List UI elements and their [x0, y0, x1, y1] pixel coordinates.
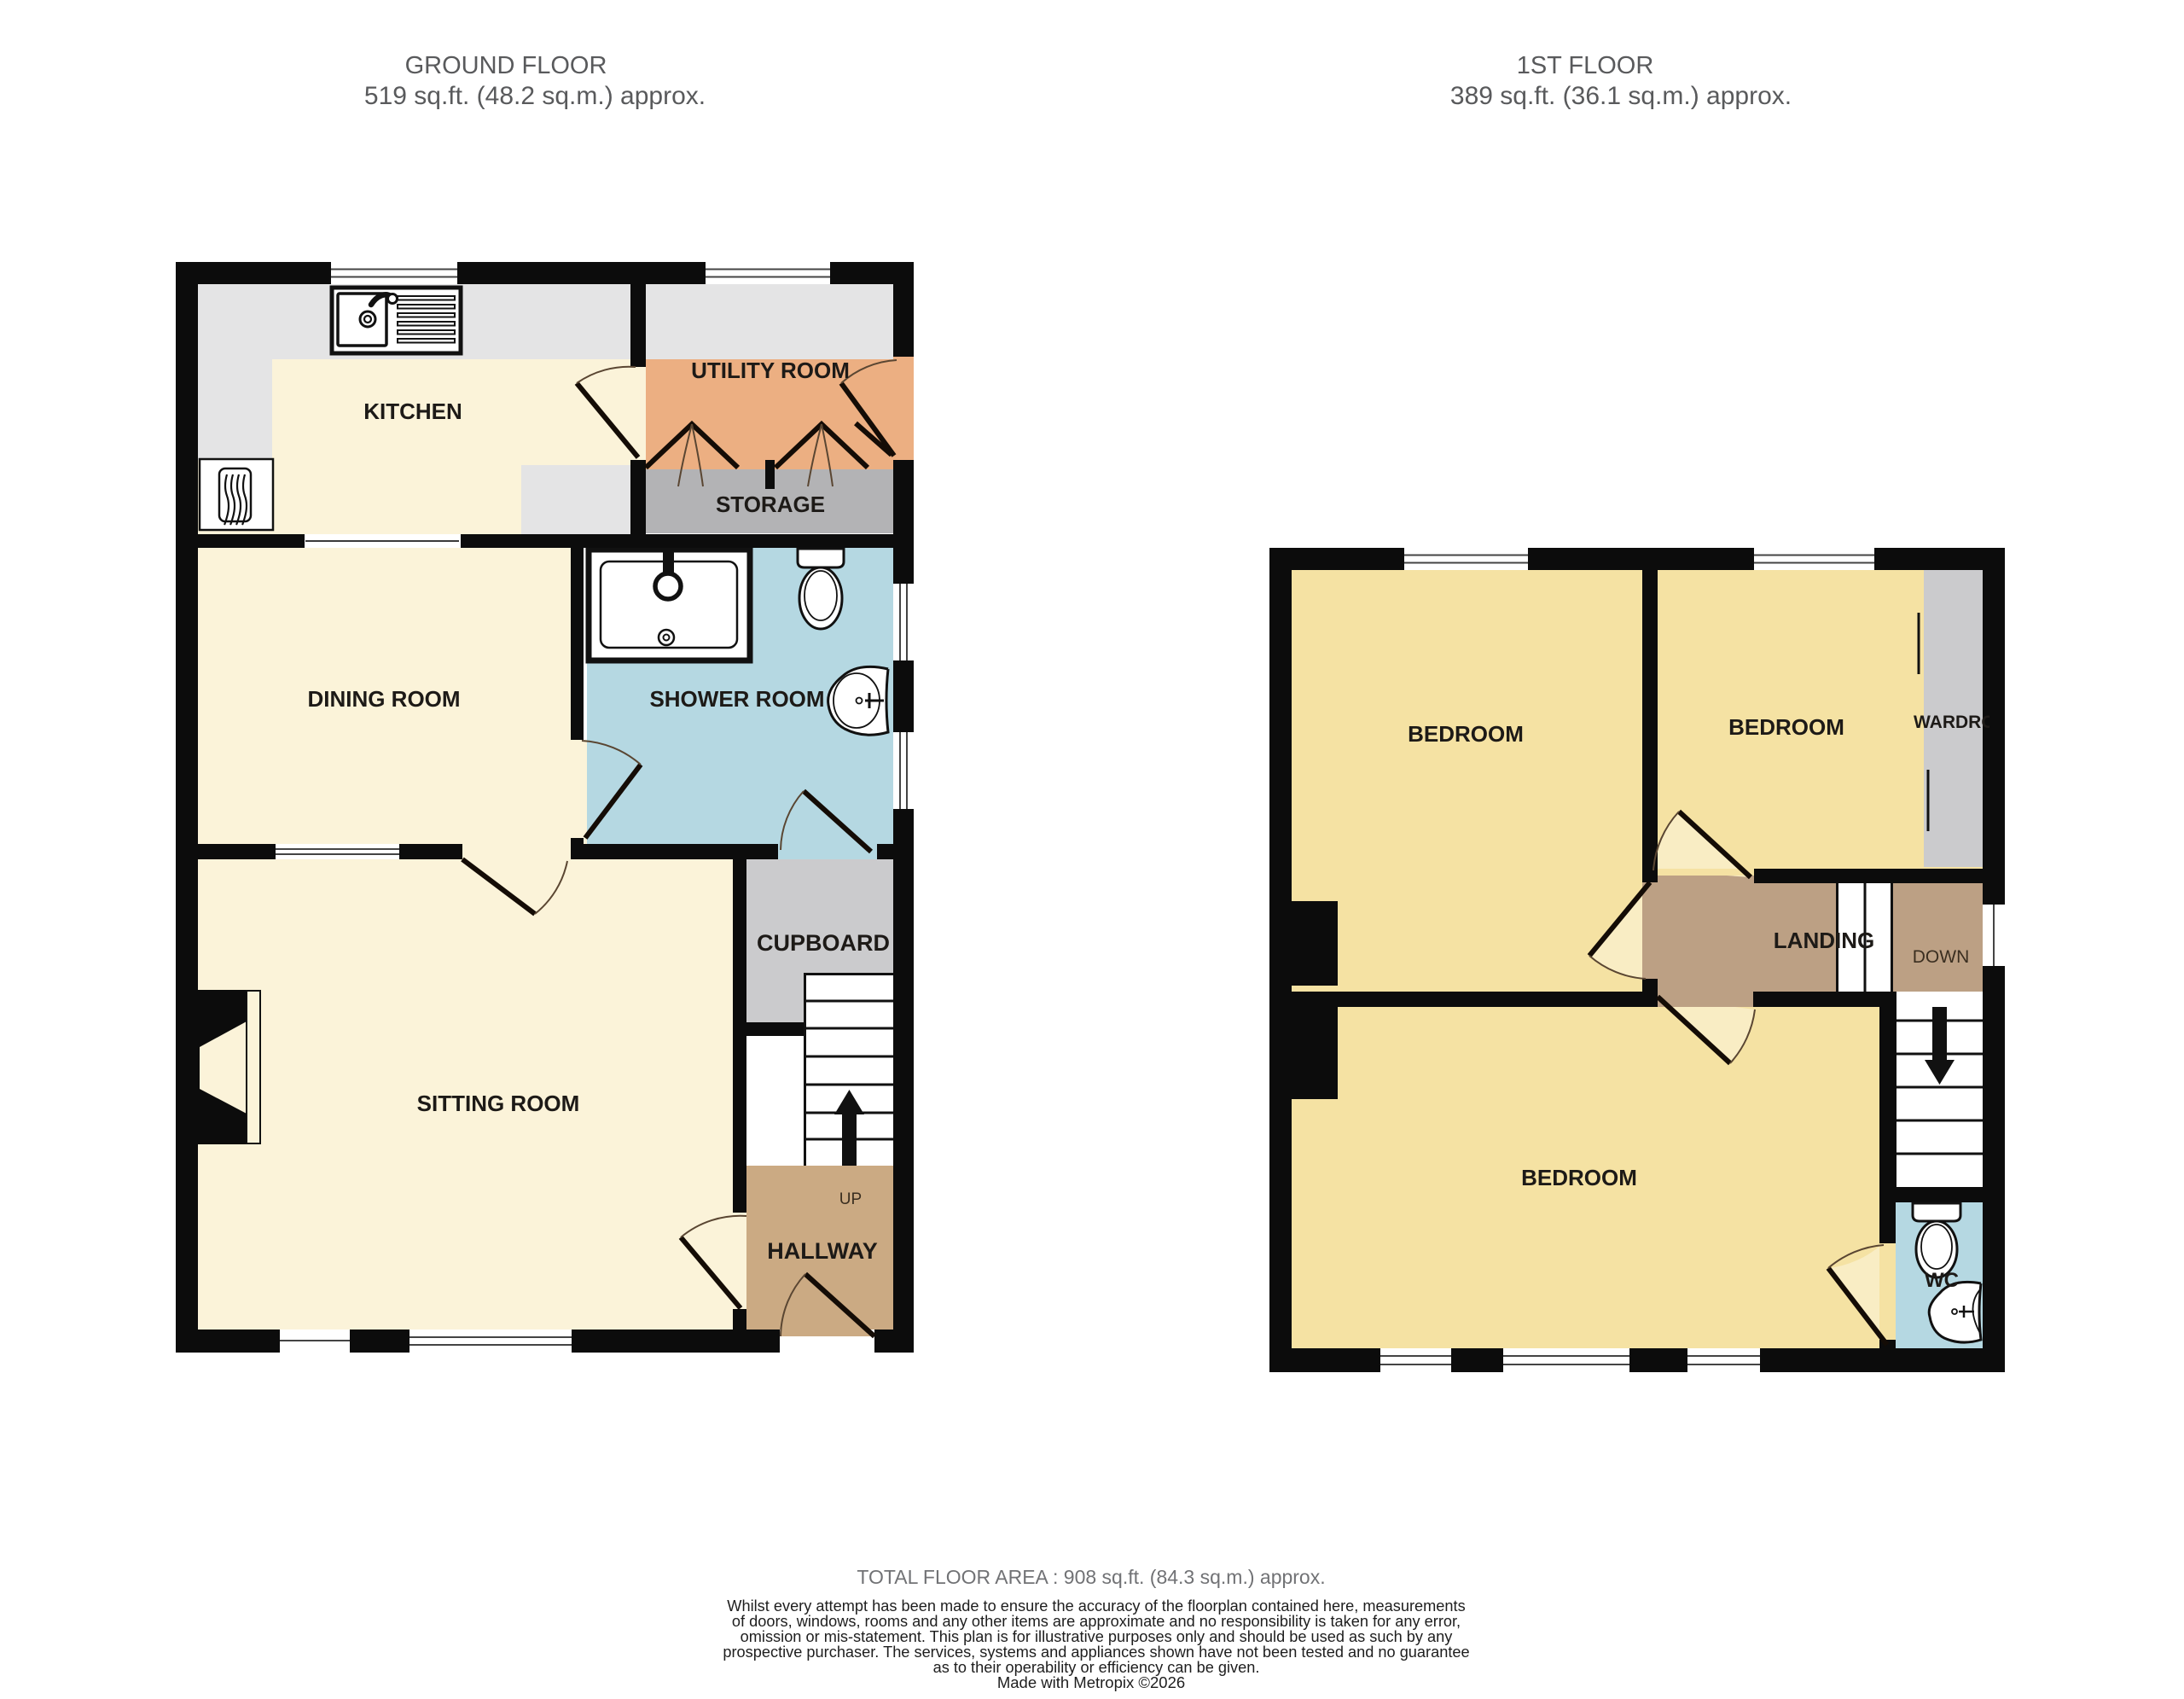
- svg-text:prospective purchaser. The ser: prospective purchaser. The services, sys…: [723, 1644, 1469, 1661]
- svg-text:GROUND FLOOR: GROUND FLOOR: [405, 52, 607, 79]
- svg-text:BEDROOM: BEDROOM: [1728, 714, 1844, 740]
- svg-text:of doors, windows, rooms and a: of doors, windows, rooms and any other i…: [732, 1613, 1461, 1630]
- svg-text:STORAGE: STORAGE: [716, 492, 825, 517]
- svg-text:UTILITY ROOM: UTILITY ROOM: [691, 358, 850, 383]
- svg-text:HALLWAY: HALLWAY: [767, 1238, 878, 1264]
- svg-text:WC: WC: [1925, 1269, 1959, 1292]
- svg-text:KITCHEN: KITCHEN: [363, 399, 462, 424]
- svg-text:BEDROOM: BEDROOM: [1521, 1165, 1637, 1190]
- svg-text:TOTAL FLOOR AREA : 908 sq.ft.: TOTAL FLOOR AREA : 908 sq.ft. (84.3 sq.m…: [857, 1566, 1325, 1588]
- svg-text:389 sq.ft. (36.1 sq.m.) approx: 389 sq.ft. (36.1 sq.m.) approx.: [1450, 82, 1792, 110]
- svg-text:BEDROOM: BEDROOM: [1408, 721, 1524, 747]
- svg-text:1ST FLOOR: 1ST FLOOR: [1517, 52, 1654, 79]
- svg-text:DOWN: DOWN: [1913, 947, 1970, 967]
- svg-text:omission or mis-statement. Thi: omission or mis-statement. This plan is …: [741, 1628, 1454, 1645]
- svg-text:UP: UP: [839, 1190, 862, 1208]
- svg-text:Whilst every attempt has been: Whilst every attempt has been made to en…: [727, 1597, 1465, 1615]
- svg-text:519 sq.ft. (48.2 sq.m.) approx: 519 sq.ft. (48.2 sq.m.) approx.: [364, 82, 706, 110]
- svg-text:LANDING: LANDING: [1774, 928, 1874, 953]
- svg-text:CUPBOARD: CUPBOARD: [757, 930, 890, 956]
- svg-text:Made with Metropix ©2026: Made with Metropix ©2026: [997, 1673, 1185, 1691]
- svg-text:SITTING ROOM: SITTING ROOM: [417, 1091, 580, 1116]
- svg-text:DINING ROOM: DINING ROOM: [307, 686, 460, 712]
- svg-text:SHOWER ROOM: SHOWER ROOM: [649, 686, 824, 712]
